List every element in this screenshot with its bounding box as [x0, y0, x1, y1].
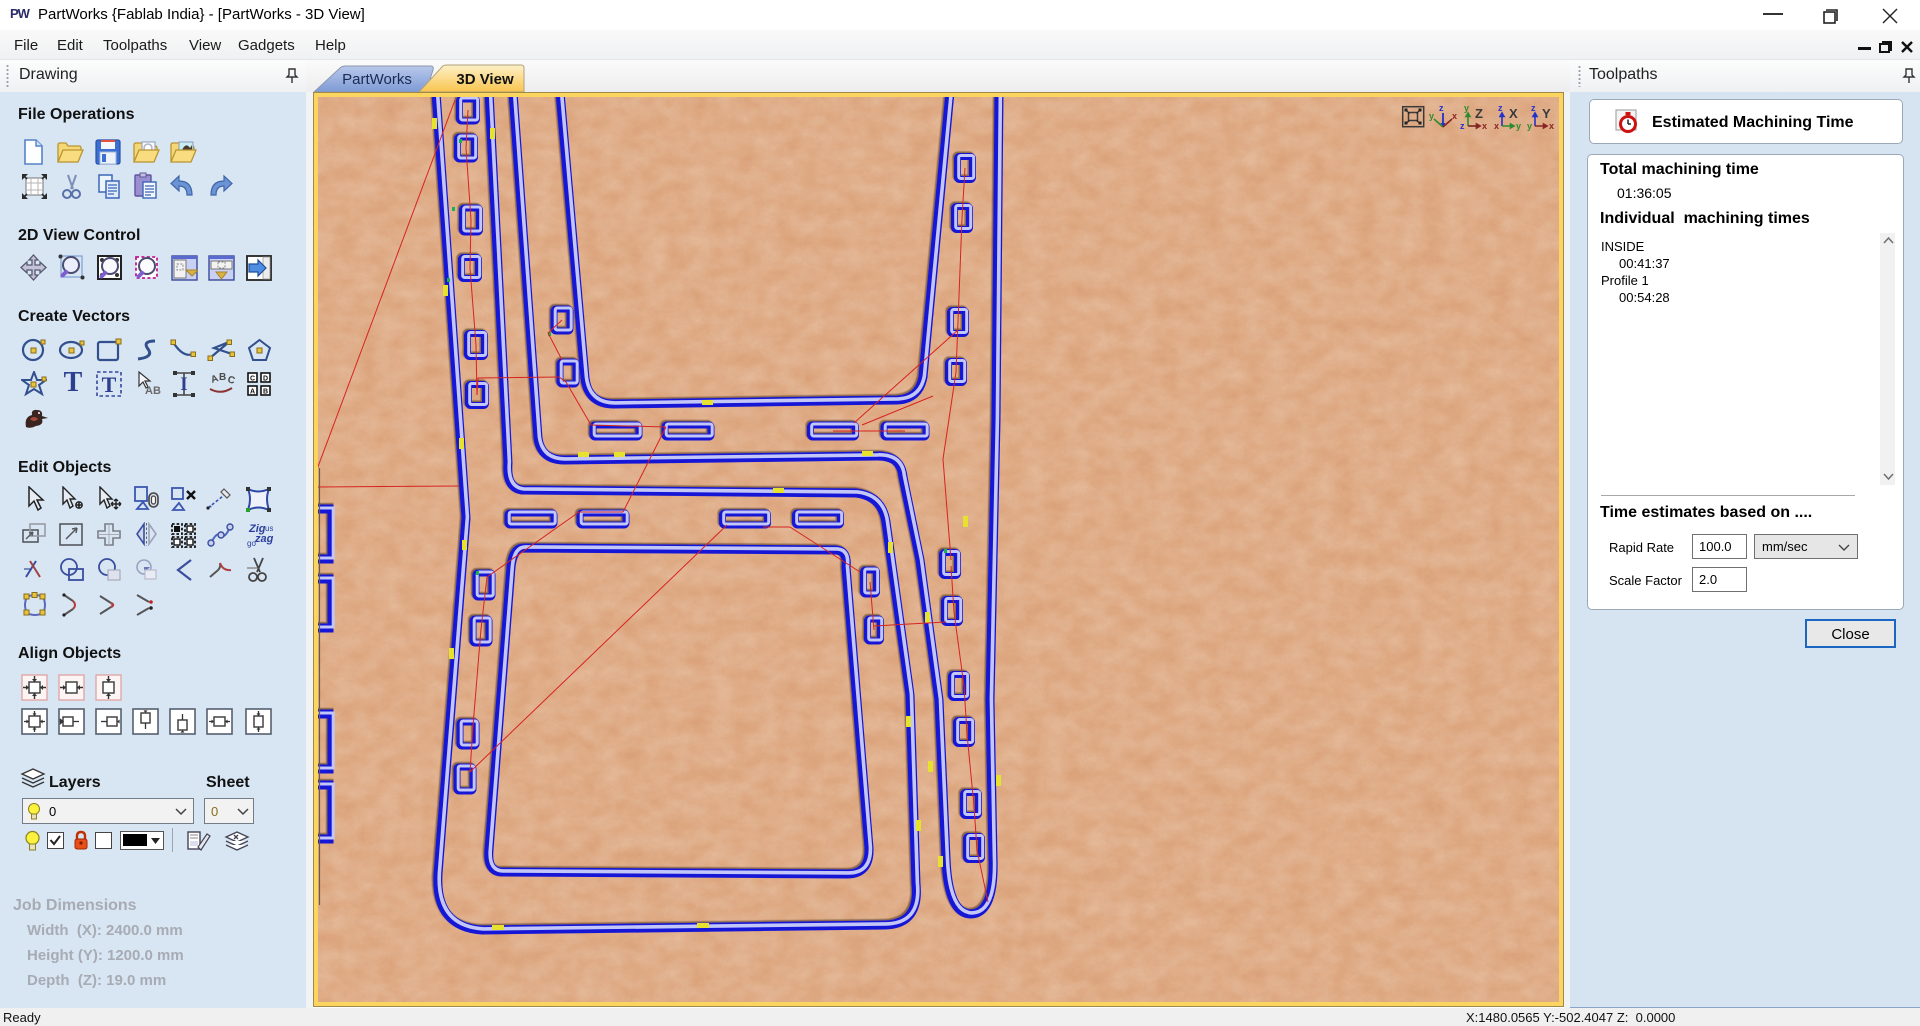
svg-text:T: T: [102, 372, 117, 397]
svg-text:us: us: [265, 524, 273, 533]
svg-text:x: x: [1452, 111, 1457, 121]
svg-text:Y: Y: [1542, 106, 1551, 121]
svg-text:z: z: [1531, 103, 1536, 113]
svg-text:x: x: [1494, 121, 1499, 131]
svg-text:z: z: [1498, 103, 1503, 113]
svg-text:A: A: [250, 389, 255, 396]
svg-text:go: go: [247, 539, 256, 548]
svg-text:C: C: [226, 374, 235, 387]
svg-text:z: z: [1460, 121, 1465, 131]
svg-text:x: x: [1482, 121, 1487, 131]
svg-text:B: B: [263, 389, 268, 396]
svg-text:3D View: 3D View: [456, 71, 514, 88]
svg-text:y: y: [1464, 103, 1469, 113]
svg-text:x: x: [1549, 121, 1554, 131]
svg-text:z: z: [1439, 103, 1444, 113]
svg-text:B: B: [219, 372, 226, 383]
svg-text:I: I: [180, 374, 187, 395]
svg-text:C: C: [250, 376, 255, 383]
svg-text:zag: zag: [254, 533, 273, 545]
svg-text:y: y: [1429, 111, 1434, 121]
svg-text:D: D: [263, 376, 268, 383]
svg-text:Z: Z: [1475, 106, 1483, 121]
svg-text:y: y: [1516, 121, 1521, 131]
svg-text:y: y: [1527, 121, 1532, 131]
svg-text:X: X: [1509, 106, 1518, 121]
svg-text:PartWorks: PartWorks: [342, 71, 412, 88]
svg-text:AB: AB: [145, 385, 161, 397]
